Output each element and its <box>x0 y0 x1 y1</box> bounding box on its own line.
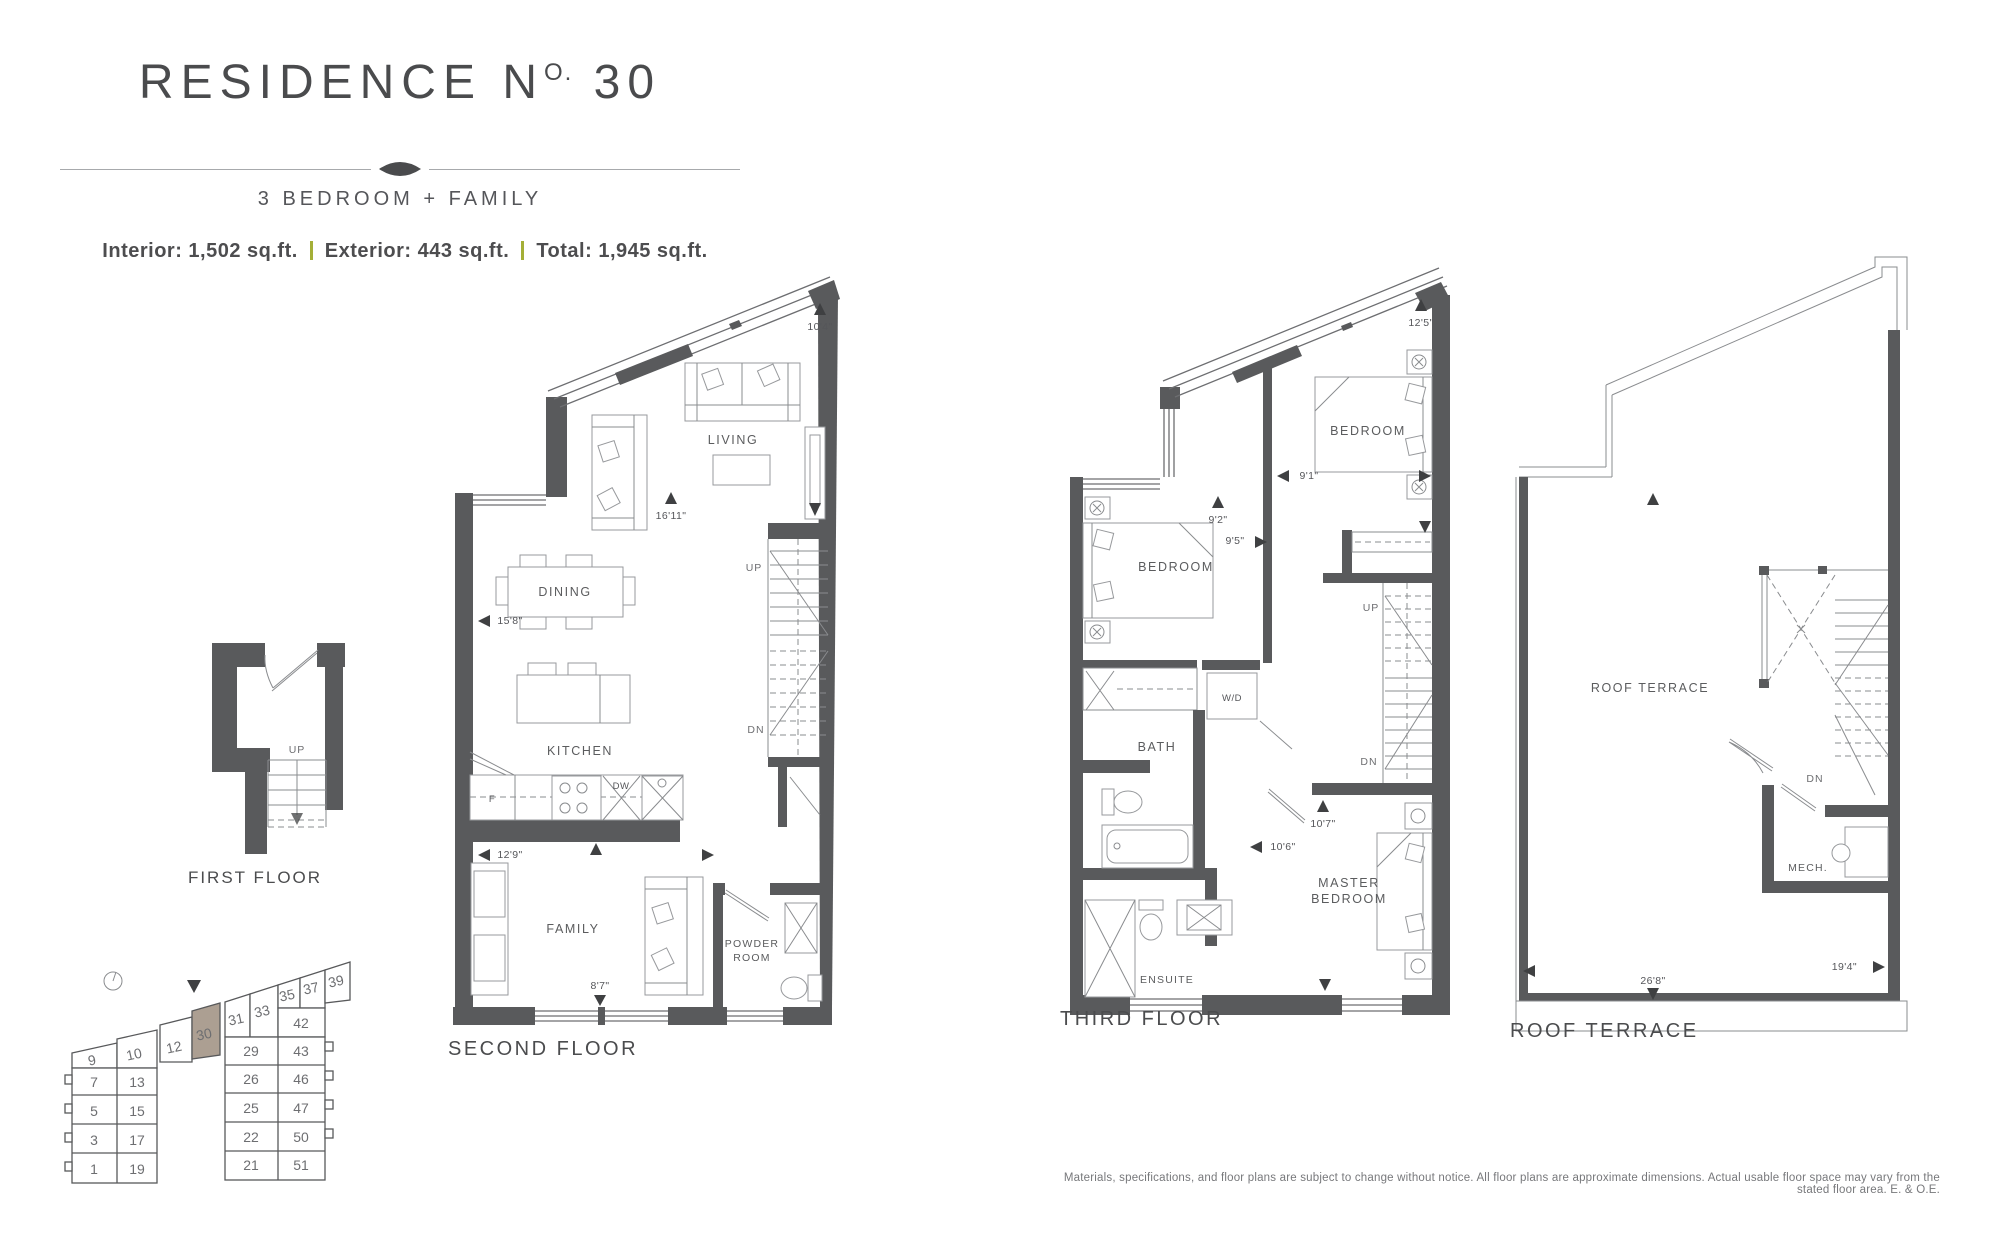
svg-text:7: 7 <box>90 1074 98 1090</box>
title-divider <box>60 160 740 178</box>
stairs-dn-label: DN <box>1360 756 1377 768</box>
key-plan: 9 10 12 30 31 33 35 37 39 42 2943 2646 2… <box>35 935 375 1245</box>
second-floor-plan: UP DN <box>440 255 880 1065</box>
second-floor-furniture <box>470 363 825 1001</box>
divider-line-right <box>429 169 740 170</box>
kitchen-label: KITCHEN <box>547 744 613 758</box>
floorplan-sheet: RESIDENCE NO. 30 3 BEDROOM + FAMILY Inte… <box>0 0 2000 1250</box>
first-floor-stairs: UP <box>268 744 326 827</box>
north-arrow-icon <box>104 972 122 990</box>
roof-mech-room: MECH. <box>1762 785 1888 893</box>
svg-text:9'1": 9'1" <box>1299 470 1318 482</box>
third-floor-label: THIRD FLOOR <box>1060 1008 1223 1031</box>
roof-terrace-label: ROOF TERRACE <box>1510 1020 1699 1043</box>
disclaimer: Materials, specifications, and floor pla… <box>1030 1172 1940 1196</box>
third-floor-stairs: UP DN <box>1360 583 1432 783</box>
powder-room-label: POWDER <box>725 938 779 950</box>
subtitle: 3 BEDROOM + FAMILY <box>60 188 740 211</box>
powder-room-label2: ROOM <box>733 952 770 964</box>
stat-separator <box>310 241 313 260</box>
living-label: LIVING <box>708 433 759 447</box>
svg-text:21: 21 <box>243 1157 259 1173</box>
svg-text:43: 43 <box>293 1043 309 1059</box>
svg-text:19: 19 <box>129 1161 145 1177</box>
roof-terrace-walls <box>1516 257 1907 1031</box>
bedroom-right-label: BEDROOM <box>1330 424 1406 438</box>
roof-stair-enclosure: DN <box>1729 566 1888 817</box>
svg-text:25: 25 <box>243 1100 259 1116</box>
fridge-label: F <box>489 794 495 805</box>
svg-text:22: 22 <box>243 1129 259 1145</box>
roof-labels-dims: ROOF TERRACE 26'8" 19'4" <box>1523 493 1885 1000</box>
first-floor-plan: UP <box>190 635 360 865</box>
master-label2: BEDROOM <box>1311 892 1387 906</box>
ensuite-label: ENSUITE <box>1140 974 1194 986</box>
first-floor-entry-door <box>265 650 318 691</box>
svg-text:47: 47 <box>293 1100 309 1116</box>
header: RESIDENCE NO. 30 <box>60 55 740 110</box>
roof-terrace-plan: DN MECH. ROOF TERRACE 26'8" 19'4" <box>1505 255 1925 1045</box>
svg-text:46: 46 <box>293 1071 309 1087</box>
stairs-up-label: UP <box>289 744 306 756</box>
stairs-dn-label: DN <box>747 724 764 736</box>
stairs-up-label: UP <box>1363 602 1380 614</box>
family-label: FAMILY <box>546 922 599 936</box>
mech-label: MECH. <box>1788 862 1828 874</box>
svg-text:12'9": 12'9" <box>497 849 522 861</box>
dining-label: DINING <box>538 585 591 599</box>
svg-text:19'4": 19'4" <box>1832 961 1857 973</box>
svg-text:26'8": 26'8" <box>1640 975 1665 987</box>
second-floor-label: SECOND FLOOR <box>448 1038 638 1061</box>
lens-ornament-icon <box>377 160 423 178</box>
svg-text:10'4": 10'4" <box>807 321 832 333</box>
stairs-dn-label: DN <box>1806 773 1823 785</box>
svg-text:50: 50 <box>293 1129 309 1145</box>
svg-text:5: 5 <box>90 1103 98 1119</box>
stairs-up-label: UP <box>746 562 763 574</box>
svg-text:42: 42 <box>293 1015 309 1031</box>
svg-text:16'11": 16'11" <box>656 510 687 522</box>
svg-text:8'7": 8'7" <box>590 980 609 992</box>
svg-text:10'7": 10'7" <box>1310 818 1335 830</box>
svg-text:29: 29 <box>243 1043 259 1059</box>
divider-line-left <box>60 169 371 170</box>
svg-text:10'6": 10'6" <box>1270 841 1295 853</box>
svg-text:26: 26 <box>243 1071 259 1087</box>
second-floor-stairs: UP DN <box>746 539 828 757</box>
svg-text:9'5": 9'5" <box>1225 535 1244 547</box>
interior-area: Interior: 1,502 sq.ft. <box>102 240 298 262</box>
unit-30-marker-icon <box>187 980 201 993</box>
first-floor-label: FIRST FLOOR <box>175 868 335 888</box>
svg-text:1: 1 <box>90 1161 98 1177</box>
svg-text:17: 17 <box>129 1132 145 1148</box>
third-floor-plan: UP DN <box>1055 255 1465 1025</box>
first-floor-walls <box>212 643 345 854</box>
svg-text:15: 15 <box>129 1103 145 1119</box>
roof-terrace-room-label: ROOF TERRACE <box>1591 681 1709 695</box>
svg-text:51: 51 <box>293 1157 309 1173</box>
page-title: RESIDENCE NO. 30 <box>139 56 661 109</box>
wd-label: W/D <box>1222 693 1242 704</box>
bedroom-left-label: BEDROOM <box>1138 560 1214 574</box>
master-label1: MASTER <box>1318 876 1380 890</box>
svg-text:12'5": 12'5" <box>1408 317 1433 329</box>
dishwasher-label: DW <box>613 781 630 792</box>
svg-text:15'8": 15'8" <box>497 615 522 627</box>
svg-text:9'2": 9'2" <box>1208 514 1227 526</box>
svg-text:3: 3 <box>90 1132 98 1148</box>
bath-label: BATH <box>1138 740 1177 754</box>
svg-text:13: 13 <box>129 1074 145 1090</box>
